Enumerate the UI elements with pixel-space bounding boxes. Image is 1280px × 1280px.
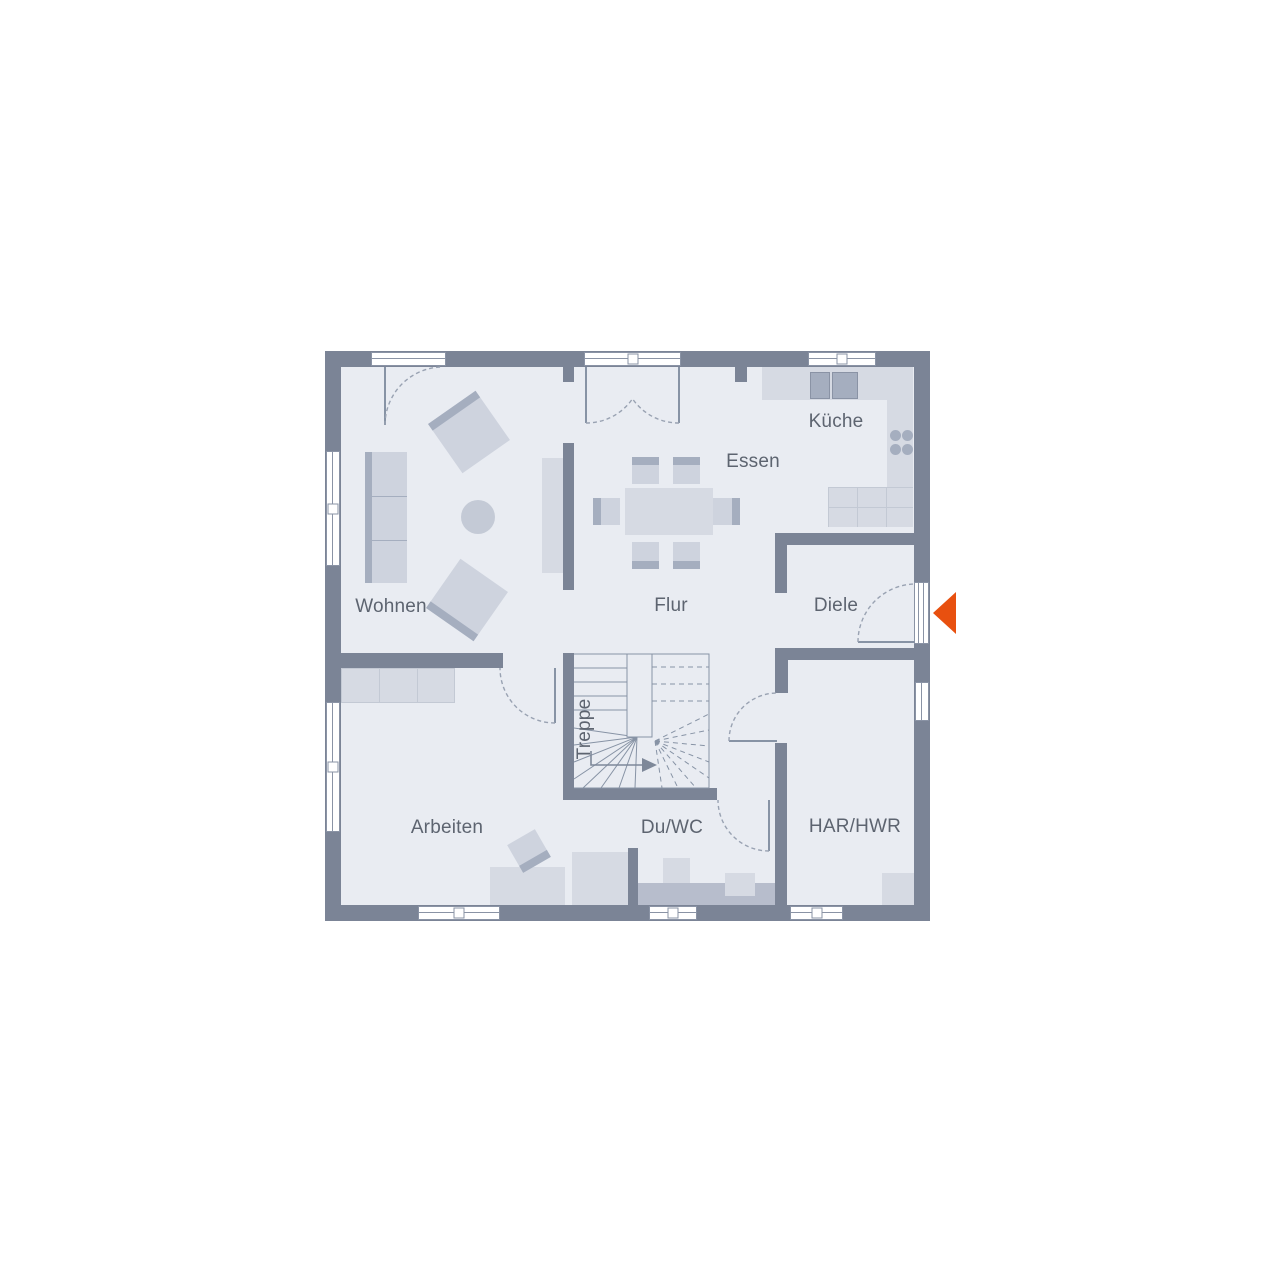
wall-diele-bottom	[775, 648, 914, 660]
dining-table	[625, 488, 713, 535]
tv-board	[542, 458, 563, 573]
room-label-harhwr: HAR/HWR	[809, 816, 901, 838]
floor-plan: Küche Essen Wohnen Flur Diele Treppe Arb…	[325, 351, 930, 921]
window-marker	[668, 908, 679, 919]
wall-tv-partition	[563, 443, 574, 590]
window-marker	[627, 354, 638, 365]
room-label-treppe: Treppe	[574, 699, 596, 760]
wall-corridor-stub	[775, 660, 788, 693]
wall-stair-left	[563, 653, 574, 800]
coffee-table	[461, 500, 495, 534]
window-frame	[921, 682, 922, 721]
wall-wohnen-arbeiten	[341, 653, 503, 668]
room-label-wohnen: Wohnen	[355, 596, 427, 618]
window-marker	[328, 762, 339, 773]
burner	[890, 444, 901, 455]
room-label-duwc: Du/WC	[641, 817, 703, 839]
shelf	[341, 668, 455, 703]
room-label-essen: Essen	[726, 451, 780, 473]
dining-chair	[632, 542, 659, 569]
wall-stub-b	[735, 367, 747, 382]
door-frame	[923, 583, 924, 643]
front-door	[914, 582, 929, 644]
window-harhwr-bottom	[790, 906, 843, 920]
wall-diele-top	[775, 533, 914, 545]
kitchen-sink-basin	[832, 372, 858, 399]
chair-backrest	[593, 498, 601, 525]
burner	[890, 430, 901, 441]
cooktop	[889, 429, 913, 457]
appliance	[882, 873, 914, 905]
window-arbeiten-left	[326, 702, 340, 832]
window-marker	[454, 908, 465, 919]
window-wohnen	[326, 451, 340, 566]
washbasin	[663, 858, 690, 883]
chair-backrest	[673, 561, 700, 569]
dining-chair	[673, 457, 700, 484]
room-label-arbeiten: Arbeiten	[411, 817, 483, 839]
chair-backrest	[632, 457, 659, 465]
chair-backrest	[732, 498, 740, 525]
shower	[572, 852, 628, 905]
window-marker	[328, 503, 339, 514]
window-marker	[811, 908, 822, 919]
window-duwc	[649, 906, 697, 920]
terrace-door-essen	[584, 352, 681, 366]
window-harhwr-right	[915, 682, 929, 721]
toilet	[725, 873, 755, 896]
dining-chair	[632, 457, 659, 484]
burner	[902, 430, 913, 441]
room-label-kueche: Küche	[809, 411, 864, 433]
wall-shower-partition	[628, 848, 638, 905]
room-label-flur: Flur	[654, 595, 688, 617]
sofa-seam	[372, 540, 407, 541]
door-frame	[918, 583, 919, 643]
terrace-door-wohnen	[371, 352, 446, 366]
chair-backrest	[632, 561, 659, 569]
sofa-seam	[372, 496, 407, 497]
shelf-divider	[379, 668, 380, 703]
dining-chair	[713, 498, 740, 525]
sofa-backrest	[365, 452, 372, 583]
kitchen-sink	[810, 372, 830, 399]
dining-chair	[593, 498, 620, 525]
page: { "plan": { "type": "floor-plan", "rooms…	[0, 0, 1280, 1280]
room-label-diele: Diele	[814, 595, 858, 617]
desk	[490, 867, 565, 905]
window-arbeiten-bottom	[418, 906, 500, 920]
wall-duwc-top	[563, 788, 717, 800]
wall-diele-left	[775, 545, 787, 593]
window-frame	[371, 358, 446, 359]
burner	[902, 444, 913, 455]
window-kueche	[808, 352, 876, 366]
chair-backrest	[673, 457, 700, 465]
kitchen-counter-low	[828, 487, 913, 527]
wall-stub-a	[563, 367, 574, 382]
wall-duwc-harhwr	[775, 743, 787, 905]
dining-chair	[673, 542, 700, 569]
window-marker	[837, 354, 848, 365]
entrance-arrow-icon	[933, 592, 956, 634]
sofa	[365, 452, 407, 583]
shelf-divider	[417, 668, 418, 703]
